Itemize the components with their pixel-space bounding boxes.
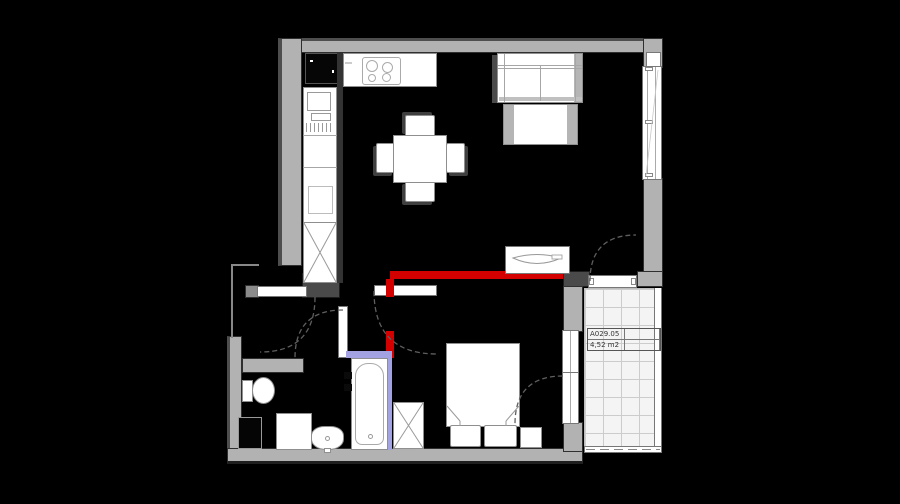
balcony-railing-bottom xyxy=(584,446,662,453)
kitchen-column-shadow xyxy=(337,53,343,283)
entry-niche-edge-vertical xyxy=(231,264,233,338)
dining-table xyxy=(393,135,447,183)
wall-living-south-right xyxy=(637,271,663,287)
wall-left-upper xyxy=(278,38,302,266)
window-return-corner xyxy=(646,52,661,67)
balcony-door-bedroom xyxy=(562,372,579,424)
bedroom-door-arc xyxy=(374,291,437,354)
bedroom-door-leaf xyxy=(374,285,437,296)
vanity-cabinet xyxy=(276,413,312,450)
cabinet-shelf-line-2 xyxy=(303,167,337,168)
dining-chair-bottom xyxy=(405,181,435,202)
red-wall-bedroom-vertical-top xyxy=(386,279,394,297)
lavender-wall-horizontal xyxy=(346,351,392,358)
entry-door-leaf xyxy=(257,286,307,297)
wall-top xyxy=(278,38,663,53)
toilet-bowl xyxy=(252,377,275,404)
balcony-label-code: A029.05 xyxy=(588,329,625,340)
washing-machine xyxy=(238,417,262,449)
living-window xyxy=(642,66,662,180)
wall-right-mid xyxy=(643,178,663,286)
kitchen-appliance-vent xyxy=(306,123,333,132)
bedroom-window xyxy=(562,330,579,374)
coffee-table xyxy=(503,104,578,145)
wash-basin xyxy=(311,426,344,450)
cabinet-drawer xyxy=(308,186,333,214)
bathroom-door-arc xyxy=(295,310,343,358)
bathtub-fitting-2 xyxy=(344,384,352,391)
fridge xyxy=(305,53,340,84)
cooktop xyxy=(362,57,401,85)
entry-door-arc xyxy=(260,297,315,352)
bedroom-balcony-door-arc xyxy=(515,376,563,424)
wardrobe-bedroom xyxy=(393,402,424,449)
dining-chair-right xyxy=(446,143,465,173)
wall-bedroom-east-top xyxy=(563,286,583,332)
pillow-left xyxy=(450,425,481,447)
wall-bottom xyxy=(227,448,583,464)
pillow-right xyxy=(484,425,517,447)
wash-basin-tap xyxy=(324,448,331,453)
tall-cabinet-kitchen xyxy=(303,222,337,283)
balcony-floor xyxy=(584,288,655,448)
balcony-door-living-threshold xyxy=(588,275,637,288)
wall-bedroom-east-bottom xyxy=(563,422,583,452)
bathtub xyxy=(351,358,388,450)
kitchen-appliance xyxy=(307,92,331,111)
sofa xyxy=(497,53,583,103)
floor-plan: A029.05 4,52 m2 xyxy=(0,0,900,504)
balcony-label: A029.05 4,52 m2 xyxy=(587,328,661,351)
entry-niche-edge-horizontal xyxy=(231,264,259,266)
bed xyxy=(446,343,520,427)
balcony-railing-right xyxy=(654,288,662,450)
tv-console xyxy=(505,246,570,274)
wall-bathroom-top xyxy=(242,358,304,373)
bathtub-fitting-1 xyxy=(344,372,352,379)
nightstand xyxy=(520,427,542,448)
cabinet-shelf-line-1 xyxy=(303,135,337,136)
dining-chair-top xyxy=(405,115,435,137)
balcony-label-area: 4,52 m2 xyxy=(588,340,625,350)
kitchen-appliance-tray xyxy=(311,113,331,121)
